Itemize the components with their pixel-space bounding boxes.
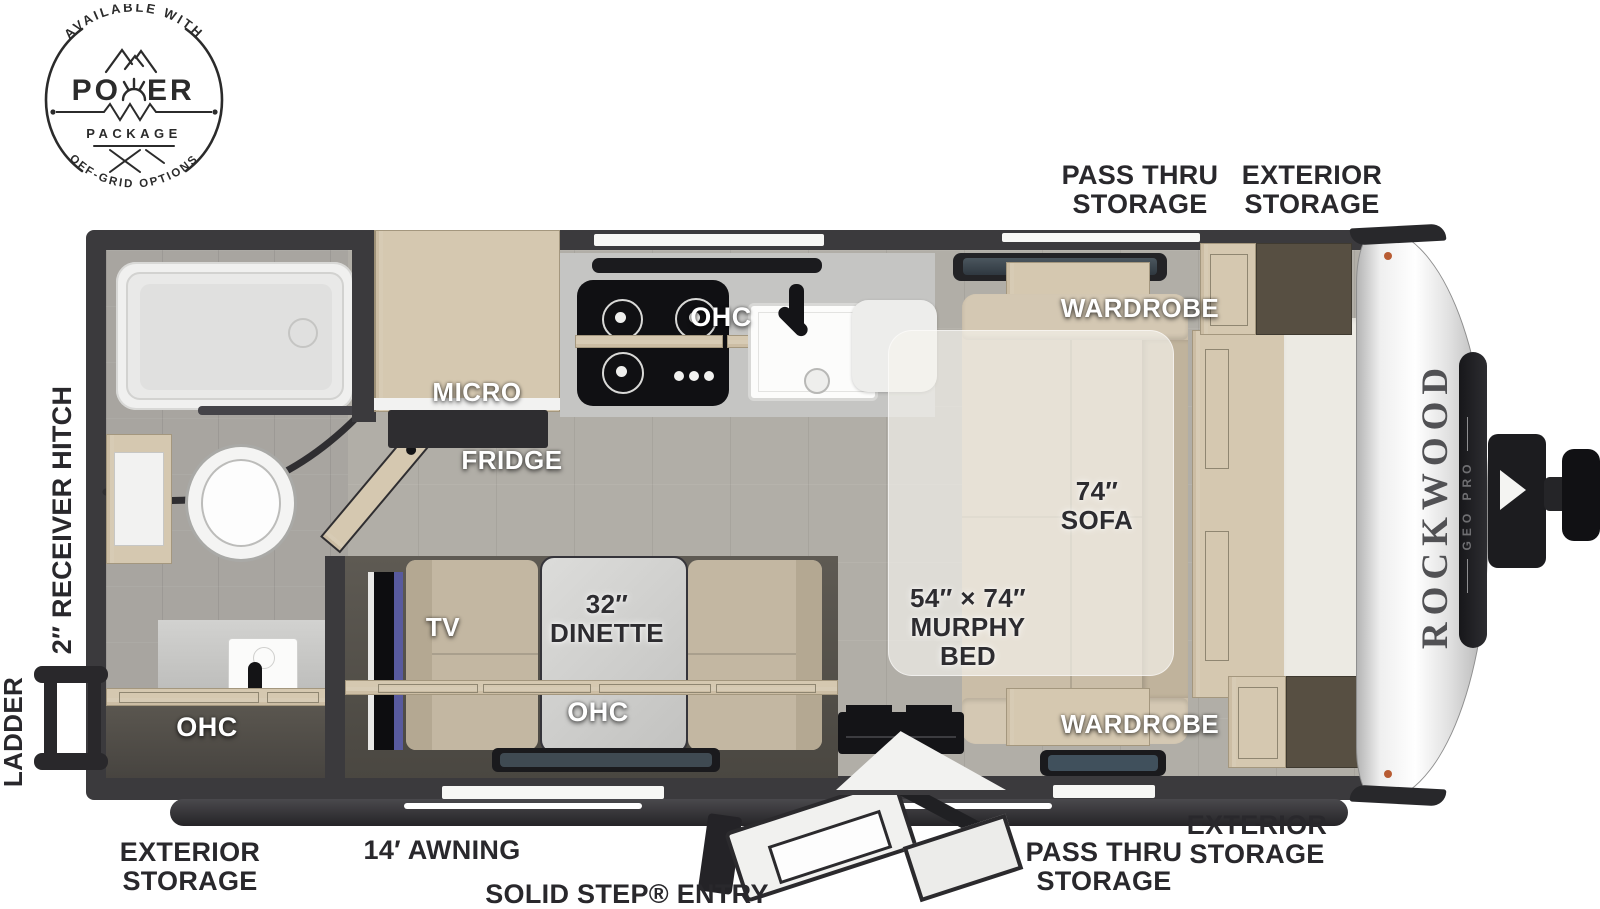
- label-entry: SOLID STEP® ENTRY: [457, 880, 797, 909]
- label-ladder: LADDER: [0, 657, 27, 807]
- brand-line-right: [1467, 418, 1468, 452]
- murphy-bed-panel: [1192, 330, 1286, 698]
- rear-ohc-shelf: [106, 688, 326, 706]
- front-cap-trim-bottom: [1350, 784, 1447, 806]
- window-bottom-wardrobe: [1053, 785, 1155, 798]
- dinette-bench-left-back: [406, 560, 432, 750]
- furnace-fin-right: [906, 705, 952, 713]
- front-storage-top-opening: [1256, 243, 1352, 335]
- floorplan-stage: AVAILABLE WITH PO ER PACKAGE OFF-GRID OP…: [0, 0, 1600, 909]
- label-exterior-top: EXTERIOR STORAGE: [1222, 161, 1402, 219]
- furnace-fin-left: [846, 705, 892, 713]
- dinette-bench-right: [688, 560, 822, 750]
- badge-top-arc-text: AVAILABLE WITH: [61, 4, 207, 42]
- label-kitchen-ohc: OHC: [631, 303, 811, 333]
- step-platform: [903, 814, 1024, 903]
- cooktop-knob-1: [674, 371, 684, 381]
- kitchen-ohc-shelf-left: [575, 335, 723, 348]
- hitch-box-highlight: [1500, 470, 1526, 510]
- badge-mountains-icon: [106, 50, 156, 72]
- badge-reflection-icon: [94, 146, 174, 172]
- fridge-front: [388, 410, 548, 448]
- marker-light-bottom: [1384, 770, 1392, 778]
- window-bottom-dinette: [442, 786, 664, 799]
- dinette-bench-right-seam: [688, 653, 796, 655]
- label-exterior-front: EXTERIOR STORAGE: [1167, 811, 1347, 869]
- toilet: [185, 444, 297, 562]
- roof-vent-bottom-glass: [1048, 755, 1158, 771]
- brand-model-text: GEO PRO: [1460, 460, 1474, 551]
- label-exterior-rear: EXTERIOR STORAGE: [100, 838, 280, 896]
- label-tv: TV: [353, 613, 533, 642]
- dinette-lower-window: [492, 748, 720, 772]
- dinette-bench-right-back: [796, 560, 822, 750]
- badge-sun-icon: [123, 79, 145, 100]
- label-bath-ohc: OHC: [117, 713, 297, 743]
- brand-name: ROCKWOOD: [1414, 361, 1457, 649]
- front-cap-trim-top: [1350, 223, 1447, 245]
- tv-edge-accent: [394, 572, 403, 750]
- power-package-badge: AVAILABLE WITH PO ER PACKAGE OFF-GRID OP…: [38, 4, 230, 196]
- toilet-lid: [201, 459, 281, 547]
- label-receiver-hitch: 2″ RECEIVER HITCH: [48, 380, 76, 660]
- cooktop-knob-3: [704, 371, 714, 381]
- ladder-post-left: [44, 666, 57, 770]
- brand-line-left: [1467, 559, 1468, 593]
- bathtub-drain: [288, 318, 318, 348]
- badge-bottom-arc-text: OFF-GRID OPTIONS: [67, 152, 201, 190]
- cooktop-knob-2: [689, 371, 699, 381]
- label-sofa: 74″ SOFA: [1007, 477, 1187, 535]
- label-wardrobe-top: WARDROBE: [1050, 294, 1230, 323]
- badge-power-suffix: ER: [147, 74, 195, 107]
- brand-mark: ROCKWOOD GEO PRO: [1404, 355, 1484, 655]
- roof-vent-bottom: [1040, 750, 1166, 776]
- dinette-ohc-shelf: [345, 680, 838, 695]
- burner-3-center: [616, 366, 627, 377]
- dinette-lower-window-glass: [500, 753, 712, 767]
- window-top-wardrobe: [1002, 233, 1200, 242]
- label-dinette-ohc: OHC: [508, 698, 688, 728]
- awning-highlight: [404, 803, 642, 809]
- badge-dot-right: [212, 109, 217, 114]
- marker-light-top: [1384, 252, 1392, 260]
- bathtub: [116, 262, 354, 410]
- rear-sink: [228, 638, 298, 692]
- tv-screen: [374, 572, 394, 750]
- burner-1-center: [615, 312, 626, 323]
- label-wardrobe-bottom: WARDROBE: [1050, 710, 1230, 739]
- badge-dot-left: [50, 109, 55, 114]
- label-micro: MICRO: [387, 378, 567, 407]
- bath-wall-lower: [325, 556, 347, 780]
- label-murphy-bed: 54″ × 74″ MURPHY BED: [878, 584, 1058, 671]
- ladder-post-right: [88, 666, 101, 770]
- label-pass-thru-top: PASS THRU STORAGE: [1050, 161, 1230, 219]
- dinette-bench-left-seam: [432, 653, 538, 655]
- badge-package-text: PACKAGE: [86, 126, 182, 141]
- window-top-kitchen: [594, 234, 824, 246]
- badge-power-prefix: PO: [72, 74, 121, 107]
- brand-model: GEO PRO: [1460, 418, 1474, 593]
- kitchen-sink-drain: [804, 368, 830, 394]
- label-dinette: 32″ DINETTE: [517, 590, 697, 648]
- front-storage-bottom: [1228, 676, 1374, 768]
- bath-wall-upper: [352, 230, 376, 422]
- hitch-box: [1488, 434, 1546, 568]
- label-fridge: FRIDGE: [422, 446, 602, 475]
- label-awning: 14′ AWNING: [352, 836, 532, 865]
- front-storage-bottom-door: [1228, 676, 1286, 768]
- bath-vanity-mirror: [114, 452, 164, 546]
- range-hood-bar: [592, 258, 822, 273]
- hitch-coupler: [1562, 449, 1600, 541]
